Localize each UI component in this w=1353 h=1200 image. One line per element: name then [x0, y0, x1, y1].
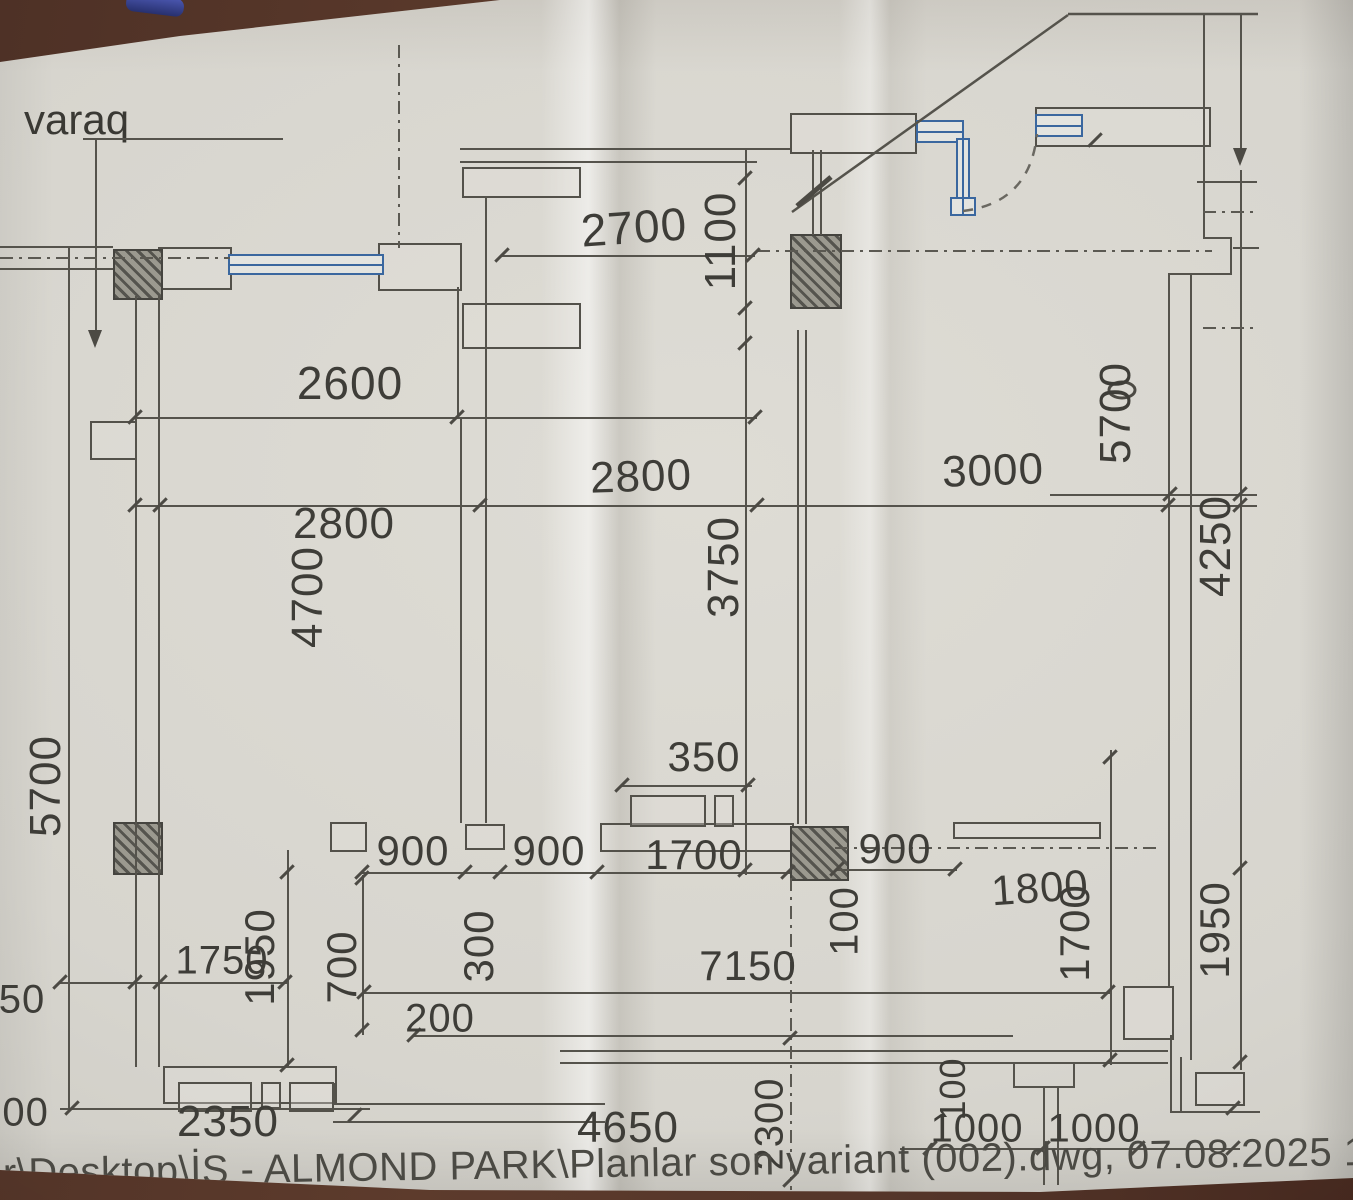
dimension-label: 5700: [21, 735, 71, 837]
diagonal-wall-line: [792, 15, 1068, 212]
dimension-label: 7150: [699, 942, 796, 990]
floor-plan-drawing: varaq 2700110026002800470028003000375057…: [0, 0, 1353, 1200]
dimension-label: 4700: [283, 546, 333, 648]
dimension-label: 900: [858, 825, 931, 873]
dimension-label: 100: [0, 1091, 49, 1136]
dimension-label: 700: [318, 930, 366, 1003]
door-leaf-diagonal: [797, 177, 831, 206]
dimension-label: 100: [823, 886, 868, 956]
dimension-label: 300: [455, 909, 503, 982]
dimension-label: 200: [405, 997, 475, 1042]
down-arrow-left: [88, 330, 102, 348]
dimension-label: 2800: [589, 450, 693, 504]
dimension-label: 900: [512, 827, 585, 875]
blueprint-paper: varaq 2700110026002800470028003000375057…: [0, 0, 1353, 1200]
dimension-label: 1100: [696, 192, 746, 291]
dimension-label: 2350: [177, 1097, 279, 1147]
dimension-label: 1950: [236, 908, 284, 1005]
dimension-label: 900: [376, 827, 449, 875]
dimension-label: 2700: [579, 196, 689, 257]
dimension-label: 3750: [699, 516, 749, 618]
photographed-floor-plan: varaq 2700110026002800470028003000375057…: [0, 0, 1353, 1200]
dimension-label: 5700: [1091, 362, 1141, 464]
dimension-label: 50: [0, 978, 45, 1023]
dimension-label: 4250: [1191, 495, 1241, 597]
dimension-label: 1700: [645, 831, 742, 879]
door-swing-arc: [963, 134, 1037, 211]
dimension-label: 2800: [293, 499, 395, 549]
plan-curves: [0, 0, 1353, 1200]
dimension-label: 3000: [941, 444, 1045, 498]
down-arrow-right: [1233, 148, 1247, 166]
dimension-label: 1950: [1191, 881, 1239, 978]
dimension-label: 350: [667, 733, 740, 781]
pen-cap: [125, 0, 185, 17]
dimension-label: 2600: [297, 356, 403, 410]
dimension-label: 1700: [1051, 884, 1099, 981]
